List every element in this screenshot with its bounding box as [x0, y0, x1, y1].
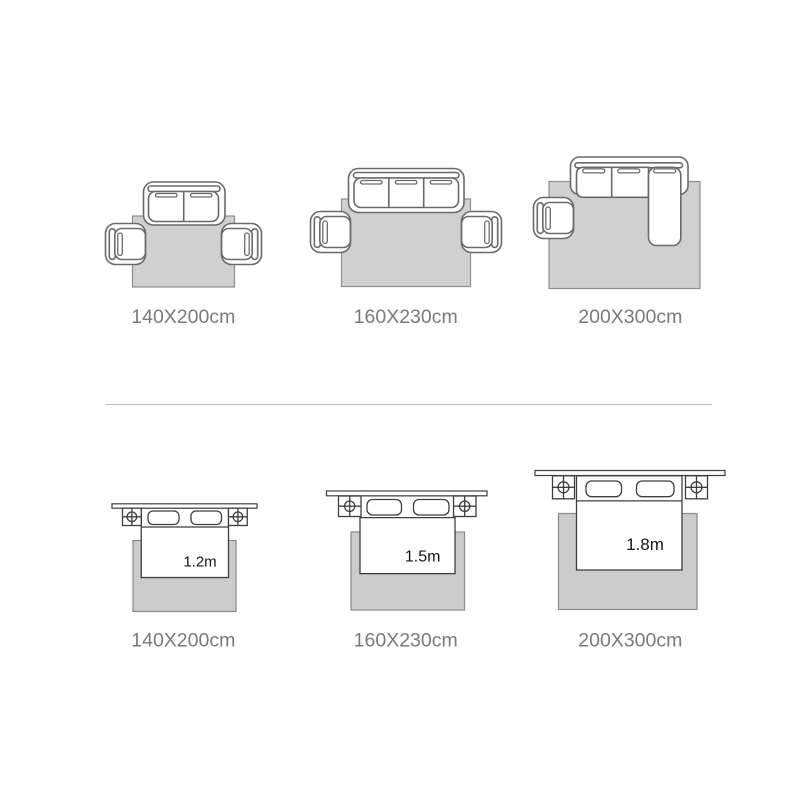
svg-text:160X230cm: 160X230cm	[354, 306, 458, 328]
svg-text:160X230cm: 160X230cm	[354, 630, 458, 652]
svg-text:1.8m: 1.8m	[626, 535, 664, 554]
svg-text:200X300cm: 200X300cm	[578, 630, 682, 652]
svg-text:140X200cm: 140X200cm	[131, 306, 235, 328]
svg-text:140X200cm: 140X200cm	[131, 630, 235, 652]
svg-text:1.2m: 1.2m	[183, 554, 216, 571]
svg-text:200X300cm: 200X300cm	[578, 306, 682, 328]
svg-text:1.5m: 1.5m	[405, 549, 441, 566]
